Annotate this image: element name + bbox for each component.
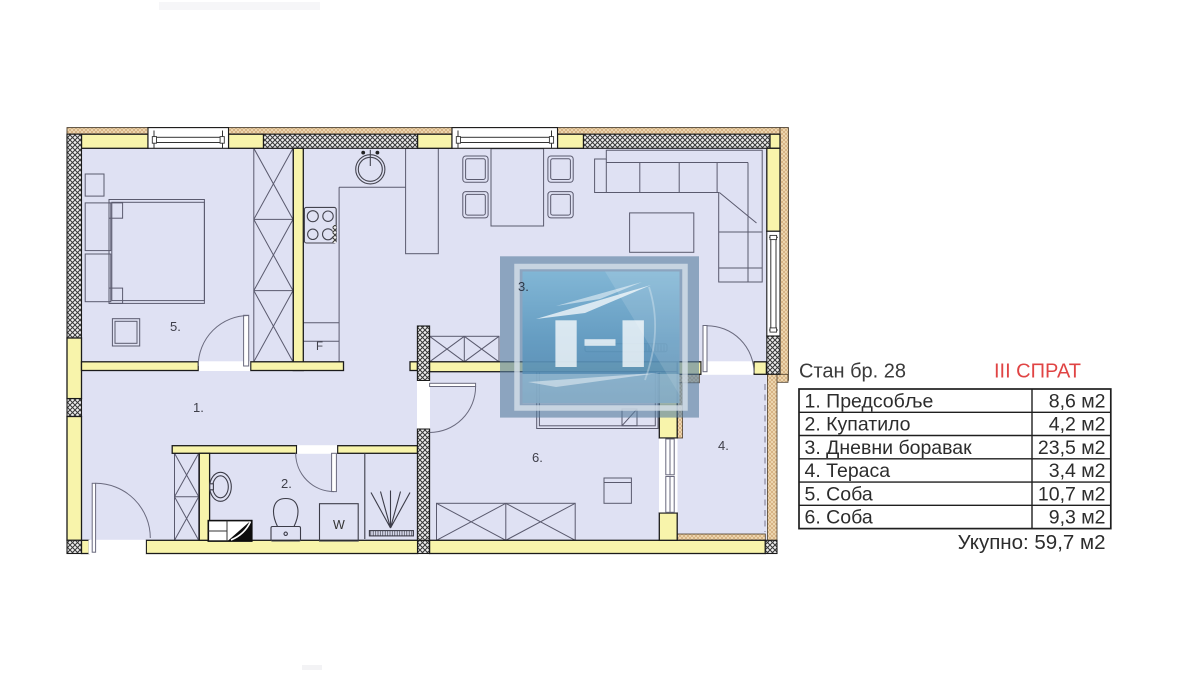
svg-text:8,6 м2: 8,6 м2 [1049,390,1106,412]
svg-text:Стан бр. 28: Стан бр. 28 [799,361,906,383]
svg-text:1. Предсобље: 1. Предсобље [805,390,934,412]
svg-text:3,4 м2: 3,4 м2 [1049,460,1106,482]
svg-text:Укупно: 59,7 м2: Укупно: 59,7 м2 [958,531,1106,554]
svg-text:1.: 1. [193,400,204,415]
svg-text:W: W [333,518,345,532]
svg-text:5.: 5. [170,319,181,334]
svg-text:F: F [316,341,323,353]
svg-text:4,2 м2: 4,2 м2 [1049,414,1106,436]
svg-text:6. Соба: 6. Соба [805,507,873,529]
svg-text:3. Дневни боравак: 3. Дневни боравак [805,437,973,459]
svg-text:2. Купатило: 2. Купатило [805,414,911,436]
svg-text:4.: 4. [718,438,729,453]
svg-text:III СПРАТ: III СПРАТ [994,361,1081,383]
svg-text:3.: 3. [518,279,529,294]
svg-text:5. Соба: 5. Соба [805,483,873,505]
svg-text:9,3 м2: 9,3 м2 [1049,507,1106,529]
svg-text:4. Тераса: 4. Тераса [805,460,891,482]
svg-text:23,5 м2: 23,5 м2 [1038,437,1106,459]
svg-text:2.: 2. [281,476,292,491]
svg-text:6.: 6. [532,450,543,465]
svg-text:10,7 м2: 10,7 м2 [1038,483,1106,505]
